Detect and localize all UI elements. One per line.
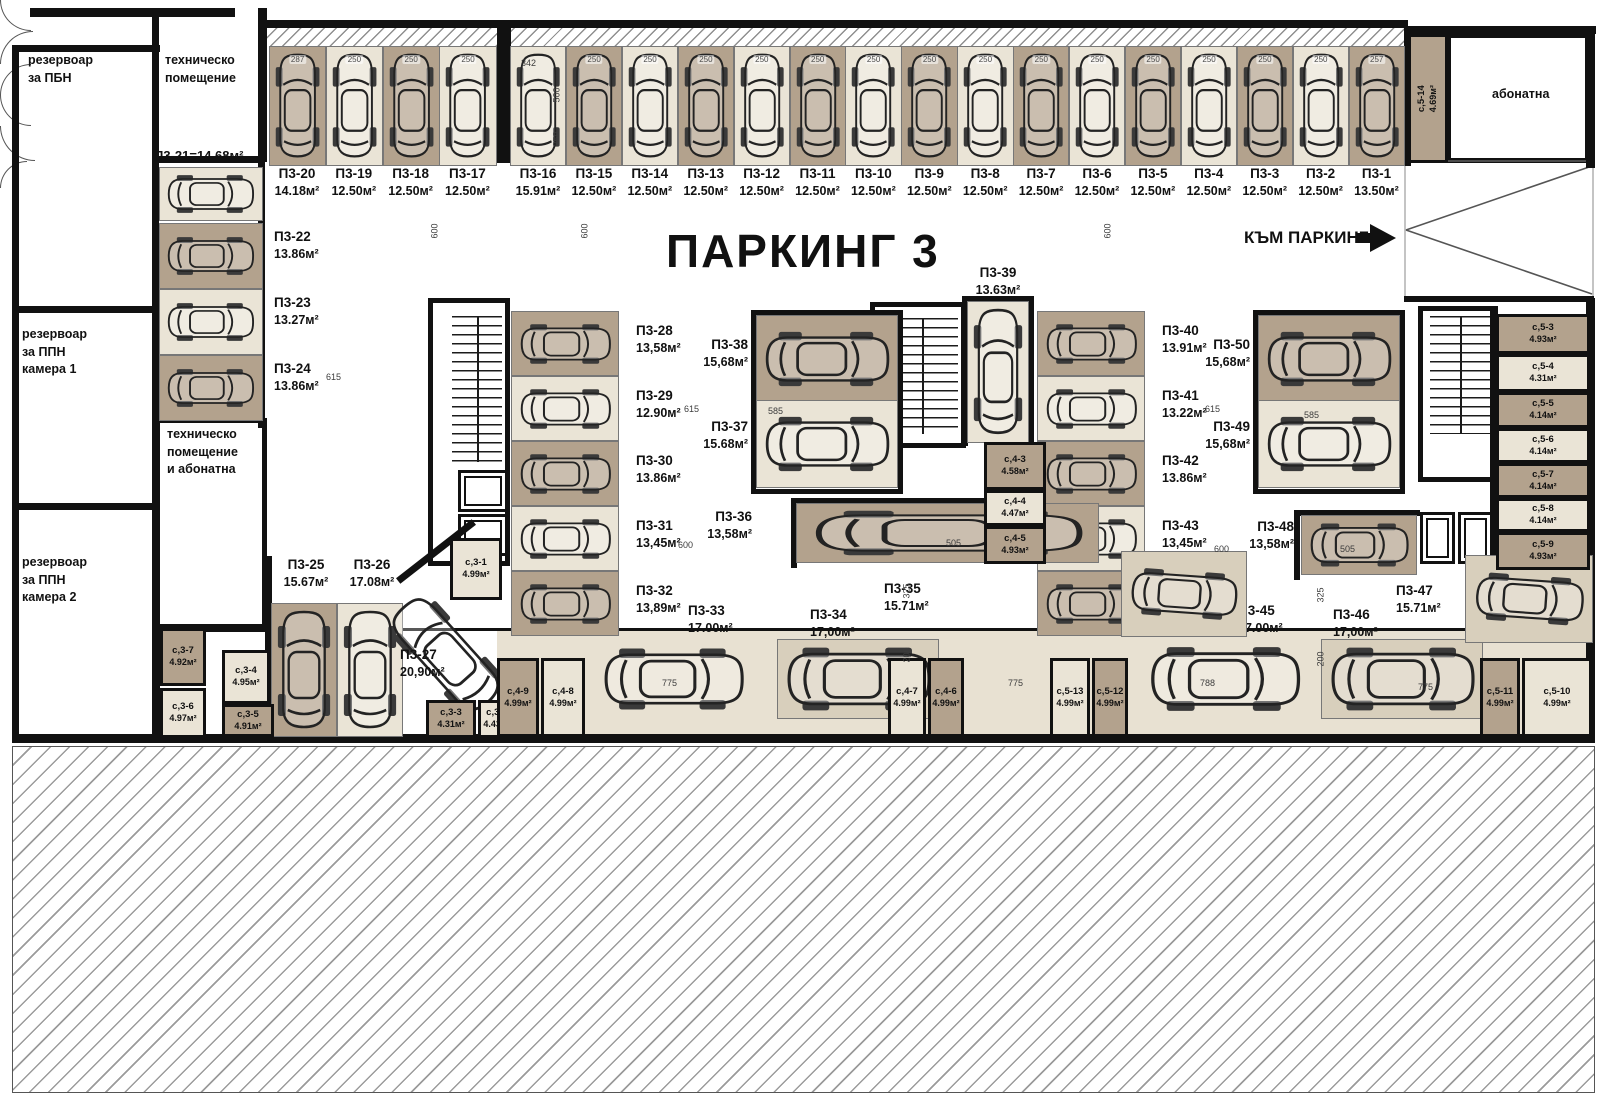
storage-id: с,4-4 (1001, 497, 1028, 508)
spot-area: 13,58м² (636, 340, 681, 356)
spot-area: 17,00м² (1333, 624, 1378, 640)
dimension-label: 600 (678, 540, 693, 550)
storage-s4_9: с,4-94.99м² (497, 658, 539, 737)
spot-id: П3-6 (1075, 165, 1120, 183)
car-icon (1243, 53, 1287, 159)
spot-id: П3-15 (572, 165, 617, 183)
stall-dim-label: 250 (865, 55, 882, 64)
spot-area: 15,68м² (1205, 436, 1250, 452)
spot-id: П3-30 (636, 452, 681, 470)
spot-label-p50: П3-5015,68м² (1205, 336, 1250, 370)
dimension-label: 200 (1316, 651, 1326, 666)
spot-label-p9: П3-912.50м² (907, 165, 952, 199)
spot-label-p34: П3-3417,00м² (810, 606, 855, 640)
dimension-label: 250 (552, 131, 562, 146)
spot-area: 13.50м² (1354, 183, 1399, 199)
wall (12, 503, 159, 510)
storage-id: с,4-6 (932, 687, 959, 698)
wall (152, 8, 159, 741)
spot-area: 15.68м² (703, 436, 748, 452)
car-icon (1045, 323, 1137, 364)
elevator-icon (458, 470, 508, 512)
spot-area: 13.86м² (274, 378, 319, 394)
spot-label-p17: П3-1712.50м² (445, 165, 490, 199)
storage-s4_4: с,4-44.47м² (984, 490, 1046, 526)
elevator-icon (1420, 512, 1455, 564)
spot-id: П3-7 (1019, 165, 1064, 183)
car-icon (764, 331, 890, 387)
car-icon (389, 53, 434, 159)
car-icon (973, 308, 1023, 436)
wall (1028, 296, 1034, 446)
spot-id: П3-50 (1205, 336, 1250, 354)
room-label-abonatna: абонатна (1492, 86, 1549, 104)
spot-label-p16: П3-1615.91м² (516, 165, 561, 199)
spot-label-p22: П3-2213.86м² (274, 228, 319, 262)
stall-dim-label: 250 (1144, 55, 1161, 64)
spot-area: 13.63м² (976, 282, 1021, 298)
spot-area: 15.91м² (516, 183, 561, 199)
spot-area: 12.50м² (627, 183, 672, 199)
spot-id: П3-22 (274, 228, 319, 246)
spot-label-p30: П3-3013.86м² (636, 452, 681, 486)
dimension-label: 325 (902, 583, 912, 598)
storage-s4_6: с,4-64.99м² (928, 658, 964, 737)
storage-s5_6: с,5-64.14м² (1496, 428, 1590, 463)
hatch-strip-top (267, 27, 1405, 47)
spot-id: П3-39 (976, 264, 1021, 282)
dimension-label: 775 (1008, 678, 1023, 688)
storage-id: с,4-8 (549, 687, 576, 698)
storage-id: с,5-13 (1056, 687, 1083, 698)
hatch-area-bottom (12, 746, 1595, 1093)
spot-area: 13,58м² (707, 526, 752, 542)
spot-area: 13,45м² (636, 535, 681, 551)
spot-id: П3-16 (516, 165, 561, 183)
car-icon (1355, 53, 1399, 159)
dimension-label: 500 (552, 87, 562, 102)
car-icon (332, 53, 377, 159)
storage-area: 4.99м² (893, 698, 920, 708)
spot-area: 13.86м² (636, 470, 681, 486)
storage-area: 4.93м² (1529, 334, 1556, 344)
spot-label-p33: П3-3317.00м² (688, 602, 733, 636)
storage-s4_7: с,4-74.99м² (888, 658, 926, 737)
spot-label-p46: П3-4617,00м² (1333, 606, 1378, 640)
spot-id: П3-43 (1162, 517, 1207, 535)
spot-area: 14.18м² (275, 183, 320, 199)
car-icon (167, 236, 255, 275)
storage-area: 4.97м² (169, 713, 196, 723)
storage-area: 4.31м² (437, 719, 464, 729)
car-icon (740, 53, 784, 159)
car-icon (1309, 523, 1409, 567)
spot-label-p29: П3-2912.90м² (636, 387, 681, 421)
car-icon (572, 53, 616, 159)
spot-area: 17.08м² (350, 574, 395, 590)
spot-label-p12: П3-1212.50м² (739, 165, 784, 199)
storage-area: 4.99м² (1056, 698, 1083, 708)
spot-area: 12.50м² (1131, 183, 1176, 199)
stall-dim-label: 250 (641, 55, 658, 64)
storage-s5_3: с,5-34.93м² (1496, 314, 1590, 354)
spot-id: П3-5 (1131, 165, 1176, 183)
storage-s3_7: с,3-74.92м² (160, 628, 206, 686)
spot-label-p42: П3-4213.86м² (1162, 452, 1207, 486)
storage-area: 4.99м² (462, 569, 489, 579)
plan-title: ПАРКИНГ 3 (666, 224, 940, 278)
spot-area: 12.50м² (331, 183, 376, 199)
storage-s5_7: с,5-74.14м² (1496, 463, 1590, 498)
spot-label-p19: П3-1912.50м² (331, 165, 376, 199)
storage-area: 4.93м² (1529, 551, 1556, 561)
spot-label-p26: П3-2617.08м² (350, 556, 395, 590)
dimension-label: 600 (430, 223, 440, 238)
wall (497, 25, 511, 163)
spot-area: 15.67м² (284, 574, 329, 590)
spot-id: П3-11 (795, 165, 840, 183)
storage-id: с,5-11 (1486, 687, 1513, 698)
spot-label-p7: П3-712.50м² (1019, 165, 1064, 199)
spot-id: П3-36 (707, 508, 752, 526)
to-parking1-arrow-icon (1370, 224, 1396, 252)
spot-id: П3-18 (388, 165, 433, 183)
storage-area: 4.93м² (1001, 545, 1028, 555)
spot-id: П3-23 (274, 294, 319, 312)
spot-area: 15.71м² (884, 598, 929, 614)
spot-label-p3: П3-312.50м² (1242, 165, 1287, 199)
storage-s4_8: с,4-84.99м² (541, 658, 585, 737)
spot-id: П3-24 (274, 360, 319, 378)
car-icon (1045, 453, 1137, 494)
dimension-label: 775 (1418, 682, 1433, 692)
storage-area: 4.99м² (504, 698, 531, 708)
spot-label-p11: П3-1112.50м² (795, 165, 840, 199)
car-icon (519, 388, 611, 429)
stall-dim-label: 257 (1368, 55, 1385, 64)
storage-id: с,3-6 (169, 702, 196, 713)
wall (12, 45, 160, 52)
car-icon (1019, 53, 1063, 159)
car-icon (275, 53, 320, 159)
spot-id: П3-9 (907, 165, 952, 183)
spot-id: П3-1 (1354, 165, 1399, 183)
spot-area: 12.50м² (683, 183, 728, 199)
storage-id: с,3-7 (169, 646, 196, 657)
storage-area: 4.31м² (1529, 373, 1556, 383)
car-icon (167, 174, 255, 213)
dimension-label: 600 (1214, 544, 1229, 554)
car-icon (1131, 53, 1175, 159)
spot-label-p1: П3-113.50м² (1354, 165, 1399, 199)
spot-id: П3-2 (1298, 165, 1343, 183)
car-icon (796, 53, 840, 159)
wall (258, 8, 267, 162)
spot-id: П3-12 (739, 165, 784, 183)
dimension-label: 585 (1304, 410, 1319, 420)
spot-area: 13,45м² (1162, 535, 1207, 551)
car-icon (519, 518, 611, 559)
storage-id: с,5-5 (1529, 399, 1556, 410)
storage-id: с,5-3 (1529, 323, 1556, 334)
stairs-icon (452, 316, 502, 462)
dimension-label: 200 (902, 647, 912, 662)
spot-area: 17.00м² (688, 620, 733, 636)
spot-area: 12.50м² (1019, 183, 1064, 199)
storage-area: 4.14м² (1529, 446, 1556, 456)
storage-id: с,5-12 (1096, 687, 1123, 698)
spot-label-p2: П3-212.50м² (1298, 165, 1343, 199)
spot-id: П3-37 (703, 418, 748, 436)
storage-id: с,3-4 (232, 666, 259, 677)
spot-label-p8: П3-812.50м² (963, 165, 1008, 199)
spot-area: 15,68м² (703, 354, 748, 370)
spot-area: 15,68м² (1205, 354, 1250, 370)
spot-area: 12.50м² (1075, 183, 1120, 199)
storage-id: с,5-14 (1417, 85, 1428, 112)
spot-label-p10: П3-1012.50м² (851, 165, 896, 199)
dimension-label: 600 (1103, 223, 1113, 238)
spot-area: 12.50м² (963, 183, 1008, 199)
spot-id: П3-32 (636, 582, 681, 600)
wall (30, 8, 235, 17)
car-icon (628, 53, 672, 159)
wall (1294, 510, 1300, 580)
dimension-label: 505 (946, 538, 961, 548)
storage-s5_11: с,5-114.99м² (1480, 658, 1520, 737)
wall (1404, 296, 1594, 302)
spot-id: П3-8 (963, 165, 1008, 183)
spot-id: П3-42 (1162, 452, 1207, 470)
storage-area: 4.92м² (169, 657, 196, 667)
spot-label-p47: П3-4715.71м² (1396, 582, 1441, 616)
spot-area: 13,58м² (1249, 536, 1294, 552)
wall (1586, 26, 1595, 168)
car-icon (1187, 53, 1231, 159)
storage-id: с,5-4 (1529, 362, 1556, 373)
spot-area: 13.27м² (274, 312, 319, 328)
room-label-tech-room: техническо помещение (165, 52, 236, 87)
car-icon (277, 610, 331, 730)
car-icon (167, 302, 255, 341)
stall-dim-label: 250 (1256, 55, 1273, 64)
spot-id: П3-38 (703, 336, 748, 354)
storage-id: с,4-5 (1001, 534, 1028, 545)
spot-area: 12.50м² (1242, 183, 1287, 199)
storage-area: 4.99м² (932, 698, 959, 708)
storage-id: с,5-8 (1529, 504, 1556, 515)
spot-area: 12.50м² (1186, 183, 1231, 199)
spot-area: 12.50м² (445, 183, 490, 199)
car-icon (519, 453, 611, 494)
storage-s4_3: с,4-34.58м² (984, 442, 1046, 490)
storage-s3_3: с,3-34.31м² (426, 700, 476, 738)
storage-area: 4.99м² (1096, 698, 1123, 708)
stall-dim-label: 250 (697, 55, 714, 64)
storage-id: с,5-6 (1529, 435, 1556, 446)
dimension-label: 615 (326, 372, 341, 382)
stall-dim-label: 250 (346, 55, 363, 64)
car-icon (1075, 53, 1119, 159)
dimension-label: 342 (521, 58, 536, 68)
stall-dim-label: 250 (977, 55, 994, 64)
storage-s3_4: с,3-44.95м² (222, 650, 270, 704)
dimension-label: 600 (580, 223, 590, 238)
room-label-tech-abonatna: техническо помещение и абонатна (167, 426, 238, 479)
storage-s5_8: с,5-84.14м² (1496, 498, 1590, 532)
spot-label-p49: П3-4915,68м² (1205, 418, 1250, 452)
stall-dim-label: 250 (753, 55, 770, 64)
car-icon (519, 323, 611, 364)
spot-area: 13.86м² (274, 246, 319, 262)
storage-id: с,5-7 (1529, 470, 1556, 481)
spot-label-p13: П3-1312.50м² (683, 165, 728, 199)
car-icon (1329, 647, 1475, 712)
spot-id: П3-4 (1186, 165, 1231, 183)
storage-s5_9: с,5-94.93м² (1496, 532, 1590, 570)
dimension-label: 775 (662, 678, 677, 688)
storage-area: 4.69м² (1428, 85, 1438, 112)
spot-area: 12.50м² (1298, 183, 1343, 199)
spot-label-p38: П3-3815,68м² (703, 336, 748, 370)
spot-id: П3-27 (400, 646, 445, 664)
storage-area: 4.14м² (1529, 515, 1556, 525)
stall-dim-label: 250 (1312, 55, 1329, 64)
storage-s5_13: с,5-134.99м² (1050, 658, 1090, 737)
spot-id: П3-48 (1249, 518, 1294, 536)
spot-label-p23: П3-2313.27м² (274, 294, 319, 328)
spot-id: П3-20 (275, 165, 320, 183)
car-icon (445, 53, 490, 159)
spot-label-p48: П3-4813,58м² (1249, 518, 1294, 552)
room-label-reservoir-ppn2: резервоар за ППН камера 2 (22, 554, 87, 607)
storage-area: 4.47м² (1001, 508, 1028, 518)
storage-s5_12: с,5-124.99м² (1092, 658, 1128, 737)
spot-label-p5: П3-512.50м² (1131, 165, 1176, 199)
spot-area: 20,90м² (400, 664, 445, 680)
wall (12, 45, 19, 742)
spot-area: 12.50м² (739, 183, 784, 199)
car-icon (1266, 331, 1392, 387)
spot-label-p40: П3-4013.91м² (1162, 322, 1207, 356)
spot-label-p39: П3-3913.63м² (976, 264, 1021, 298)
storage-id: с,4-9 (504, 687, 531, 698)
spot-label-p14: П3-1412.50м² (627, 165, 672, 199)
stall-dim-label: 287 (289, 55, 306, 64)
spot-id: П3-14 (627, 165, 672, 183)
wall (152, 156, 265, 163)
storage-id: с,5-10 (1543, 687, 1570, 698)
storage-id: с,4-3 (1001, 455, 1028, 466)
storage-id: с,3-5 (234, 710, 261, 721)
spot-label-p15: П3-1512.50м² (572, 165, 617, 199)
room-label-reservoir-pbn: резервоар за ПБН (28, 52, 93, 87)
storage-area: 4.99м² (1543, 698, 1570, 708)
spot-id: П3-34 (810, 606, 855, 624)
room-label-reservoir-ppn1: резервоар за ППН камера 1 (22, 326, 87, 379)
spot-id: П3-10 (851, 165, 896, 183)
spot-area: 12.50м² (572, 183, 617, 199)
storage-id: с,3-1 (462, 558, 489, 569)
car-icon (1266, 416, 1392, 472)
wall (12, 306, 159, 313)
storage-area: 4.14м² (1529, 410, 1556, 420)
spot-id: П3-49 (1205, 418, 1250, 436)
spot-label-p31: П3-3113,45м² (636, 517, 681, 551)
stall-dim-label: 250 (403, 55, 420, 64)
spot-label-p25: П3-2515.67м² (284, 556, 329, 590)
spot-label-p37: П3-3715.68м² (703, 418, 748, 452)
parking-floor-plan: ПАРКИНГ 3 КЪМ ПАРКИНГ 1 резервоар за ПБН… (0, 0, 1600, 1120)
spot-area: 12.50м² (851, 183, 896, 199)
spot-id: П3-33 (688, 602, 733, 620)
spot-id: П3-29 (636, 387, 681, 405)
wall (1404, 26, 1596, 34)
car-icon (851, 53, 895, 159)
spot-label-p43: П3-4313,45м² (1162, 517, 1207, 551)
storage-area: 4.95м² (232, 677, 259, 687)
spot-area: 13.22м² (1162, 405, 1207, 421)
car-icon (764, 416, 890, 472)
spot-label-p36: П3-3613,58м² (707, 508, 752, 542)
car-icon (1149, 646, 1301, 712)
spot-label-p24: П3-2413.86м² (274, 360, 319, 394)
spot-id: П3-40 (1162, 322, 1207, 340)
spot-id: П3-31 (636, 517, 681, 535)
storage-s4_5: с,4-54.93м² (984, 526, 1046, 564)
ramp (1404, 160, 1594, 300)
storage-s5_14: с,5-144.69м² (1408, 34, 1448, 163)
stall-dim-label: 250 (1089, 55, 1106, 64)
spot-id: П3-3 (1242, 165, 1287, 183)
storage-area: 4.99м² (1486, 698, 1513, 708)
car-icon (963, 53, 1007, 159)
spot-label-p20: П3-2014.18м² (275, 165, 320, 199)
spot-area: 12.50м² (795, 183, 840, 199)
car-icon (1045, 388, 1137, 429)
spot-area: 13.86м² (1162, 470, 1207, 486)
spot-area: 12.50м² (907, 183, 952, 199)
stall-dim-label: 250 (809, 55, 826, 64)
storage-id: с,3-3 (437, 708, 464, 719)
storage-area: 4.91м² (234, 721, 261, 731)
storage-area: 4.14м² (1529, 481, 1556, 491)
spot-id: П3-19 (331, 165, 376, 183)
spot-label-p18: П3-1812.50м² (388, 165, 433, 199)
stall-dim-label: 250 (1033, 55, 1050, 64)
dimension-label: 505 (1340, 544, 1355, 554)
storage-s5_5: с,5-54.14м² (1496, 392, 1590, 428)
storage-area: 4.58м² (1001, 466, 1028, 476)
car-icon (907, 53, 951, 159)
storage-id: с,4-7 (893, 687, 920, 698)
stall-dim-label: 250 (1200, 55, 1217, 64)
spot-label-p41: П3-4113.22м² (1162, 387, 1207, 421)
spot-id: П3-25 (284, 556, 329, 574)
storage-s3_6: с,3-64.97м² (160, 688, 206, 738)
dimension-label: 615 (1205, 404, 1220, 414)
dimension-label: 585 (768, 406, 783, 416)
stall-dim-label: 250 (921, 55, 938, 64)
spot-label-p6: П3-612.50м² (1075, 165, 1120, 199)
door-arc (0, 0, 31, 31)
stall-dim-label: 250 (459, 55, 476, 64)
car-icon (519, 583, 611, 624)
stall-dim-label: 250 (585, 55, 602, 64)
storage-s5_10: с,5-104.99м² (1522, 658, 1592, 737)
car-icon (1299, 53, 1343, 159)
spot-area: 13.91м² (1162, 340, 1207, 356)
